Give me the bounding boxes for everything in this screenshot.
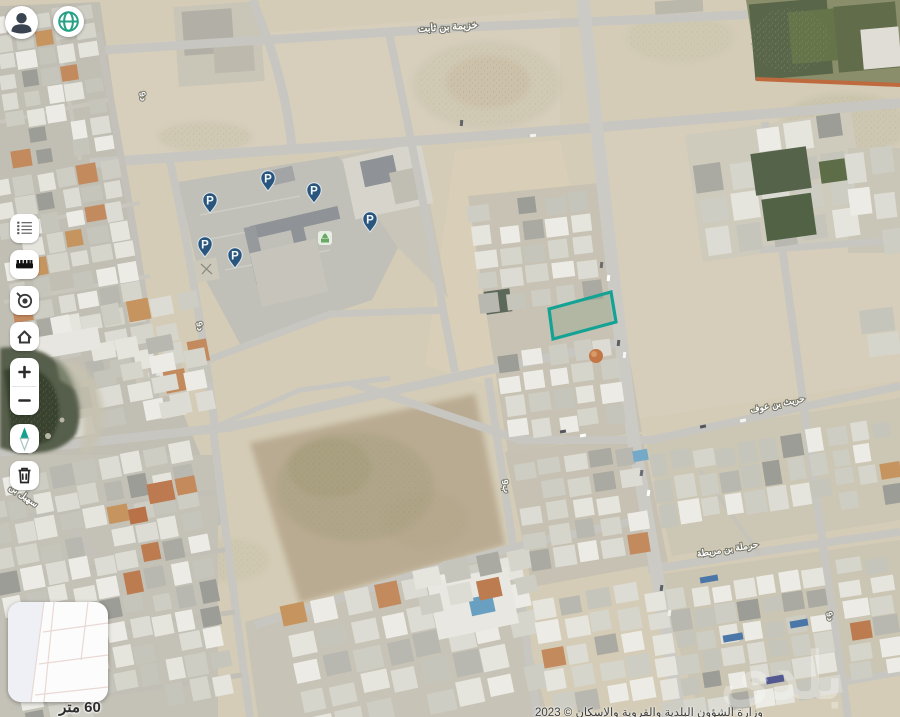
svg-text:P: P [264,174,272,186]
svg-text:بلدي: بلدي [721,640,844,715]
svg-text:P: P [206,196,214,208]
svg-text:P: P [310,186,318,198]
svg-text:P: P [201,240,209,252]
svg-text:P: P [231,251,239,263]
svg-text:P: P [366,215,374,227]
